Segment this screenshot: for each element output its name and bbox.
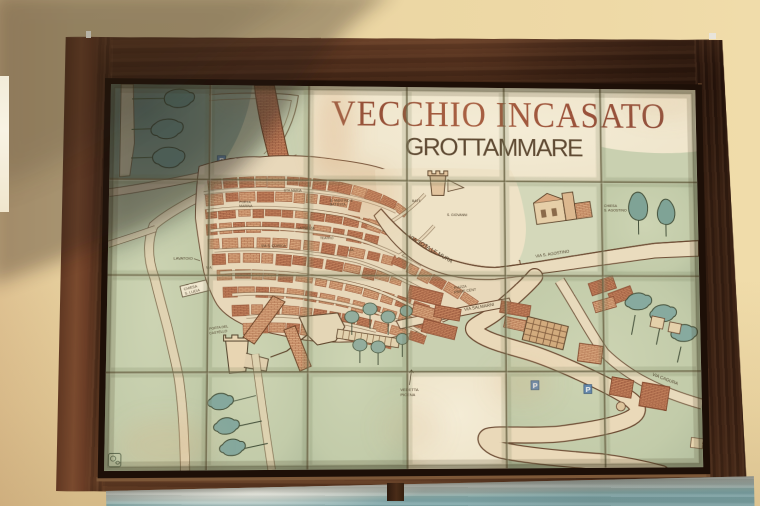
svg-text:TEATRO: TEATRO — [320, 236, 334, 240]
svg-text:VECCHIO INCASATO: VECCHIO INCASATO — [331, 93, 666, 136]
svg-text:BATT.: BATT. — [412, 199, 421, 203]
svg-text:S. GIOVANNI: S. GIOVANNI — [447, 213, 467, 217]
svg-text:STA MARIA: STA MARIA — [284, 189, 303, 193]
svg-text:LAVATOIO: LAVATOIO — [173, 256, 192, 261]
svg-text:S. AGOSTINO: S. AGOSTINO — [604, 208, 627, 212]
svg-text:MARINA: MARINA — [239, 204, 253, 208]
svg-text:P: P — [586, 385, 591, 394]
svg-text:VIA S. QUIRICA: VIA S. QUIRICA — [261, 244, 287, 248]
svg-text:GROTTAMMARE: GROTTAMMARE — [405, 134, 584, 163]
svg-text:BATTISTA: BATTISTA — [330, 203, 346, 207]
svg-text:VIA: VIA — [348, 248, 354, 252]
